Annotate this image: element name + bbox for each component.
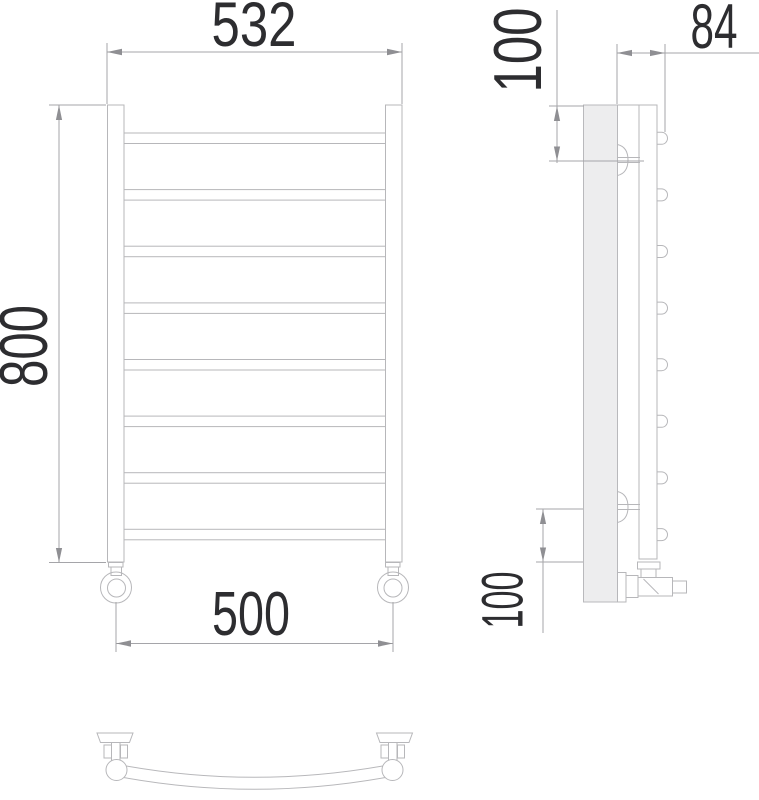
dim-overall-width-label: 532	[212, 0, 297, 60]
foot-neck	[111, 567, 122, 576]
rung	[124, 529, 386, 540]
rung-end	[657, 246, 668, 258]
arrow-right-icon	[378, 640, 393, 646]
drawing-sheet: 532 800	[0, 0, 759, 800]
mounting-bracket-top	[618, 145, 641, 176]
bracket-arm	[618, 505, 641, 510]
arrow-down-icon	[554, 147, 560, 162]
rung-outer-arc	[124, 778, 386, 790]
valve-collar	[638, 562, 661, 569]
arrow-up-icon	[56, 105, 62, 120]
dim-bottom-offset-label: 100	[471, 572, 536, 629]
dim-height: 800	[0, 105, 106, 563]
dim-bottom-offset: 100	[471, 509, 584, 633]
dim-top-offset: 100	[480, 8, 644, 164]
rungs	[124, 133, 386, 540]
rung	[124, 360, 386, 371]
technical-drawing: 532 800	[0, 0, 759, 800]
rung-end	[657, 359, 668, 371]
bracket-tab	[121, 745, 128, 758]
arrow-up-icon	[540, 510, 546, 525]
post-profile	[639, 105, 657, 559]
valve-neck	[641, 569, 656, 578]
rung	[124, 303, 386, 314]
front-view: 532 800	[0, 0, 409, 652]
arrow-left-icon	[116, 640, 131, 646]
valve-fitting	[618, 562, 687, 602]
foot-left	[101, 563, 132, 604]
valve-flange	[618, 573, 627, 603]
arrow-left-icon	[107, 49, 122, 55]
mounting-bracket-bottom	[618, 492, 641, 523]
rung-end	[657, 415, 668, 427]
rung	[124, 416, 386, 427]
rung-end	[657, 302, 668, 314]
bracket-arm	[618, 158, 641, 163]
bracket-dome	[618, 492, 629, 523]
arrow-down-icon	[56, 548, 62, 563]
dim-height-label: 800	[0, 305, 62, 387]
foot-escutcheon	[101, 572, 132, 603]
dim-mounting-width-label: 500	[212, 580, 290, 649]
bracket-flange	[97, 733, 133, 743]
valve-flange	[626, 576, 638, 598]
rung	[124, 133, 386, 144]
bracket-tab	[381, 745, 389, 758]
foot-collar	[386, 563, 401, 568]
arrow-up-icon	[554, 106, 560, 121]
wall-bracket-left	[97, 733, 133, 781]
rung	[124, 246, 386, 257]
foot-pipe	[384, 579, 402, 597]
right-post	[386, 105, 403, 562]
foot-escutcheon	[378, 572, 409, 603]
rung	[124, 190, 386, 201]
arrow-down-icon	[540, 548, 546, 562]
bracket-tab	[104, 745, 112, 758]
arrow-right-icon	[387, 49, 402, 55]
curved-rung-top-view	[124, 766, 386, 789]
bottom-view	[97, 733, 413, 789]
foot-right	[378, 563, 409, 604]
dim-overall-width: 532	[107, 0, 402, 104]
valve-body	[638, 578, 673, 597]
dim-mounting-width: 500	[116, 580, 393, 652]
arrow-right-icon	[650, 50, 665, 56]
wall-bracket-right	[377, 733, 413, 781]
bracket-flange	[377, 733, 413, 743]
bracket-tab	[398, 745, 405, 758]
wall-plate	[584, 105, 618, 602]
rung-end	[657, 472, 668, 484]
dim-depth-label: 84	[691, 0, 738, 62]
left-post	[108, 105, 125, 562]
dim-depth: 84	[617, 0, 759, 132]
bracket-dome	[618, 145, 629, 176]
valve-outlet	[673, 581, 687, 593]
dim-top-offset-label: 100	[480, 8, 556, 93]
rung	[124, 473, 386, 484]
side-view: 84 100 100	[471, 0, 759, 633]
rung-ends	[657, 132, 668, 540]
foot-pipe	[108, 579, 126, 597]
foot-neck	[388, 567, 399, 576]
arrow-left-icon	[617, 50, 632, 56]
foot-collar	[109, 563, 124, 568]
rung-end	[657, 132, 668, 144]
rung-end	[657, 189, 668, 201]
rung-end	[657, 529, 668, 541]
rung-inner-arc	[127, 766, 383, 777]
